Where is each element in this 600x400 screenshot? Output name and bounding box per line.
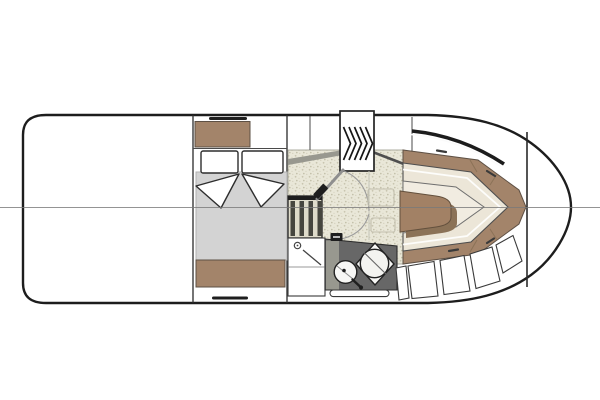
deck-plan-drawing: [0, 0, 600, 400]
grab-rail: [330, 290, 389, 297]
step: [309, 201, 314, 236]
toilet-pump-knob: [359, 285, 363, 289]
toilet-center-dot: [342, 269, 346, 273]
staircase: [288, 196, 322, 238]
step: [300, 201, 305, 236]
bow-locker: [408, 262, 438, 299]
foot-locker: [196, 260, 285, 287]
step: [291, 201, 296, 236]
cabinet-handle-dash: [437, 151, 446, 153]
pillow-left: [201, 151, 238, 173]
pillow-right: [242, 151, 283, 173]
drawer-handle: [212, 297, 248, 300]
shower-drain-dot: [297, 245, 299, 247]
deck-plan: [0, 0, 600, 400]
head-compartment: [288, 238, 397, 297]
companionway-hatch: [340, 111, 374, 171]
cabinet-handle: [209, 117, 247, 120]
cabinet-handle-dash: [449, 250, 458, 252]
companionway-box: [340, 111, 374, 171]
dresser: [195, 122, 250, 148]
step: [318, 201, 323, 236]
bow-locker: [440, 256, 470, 295]
